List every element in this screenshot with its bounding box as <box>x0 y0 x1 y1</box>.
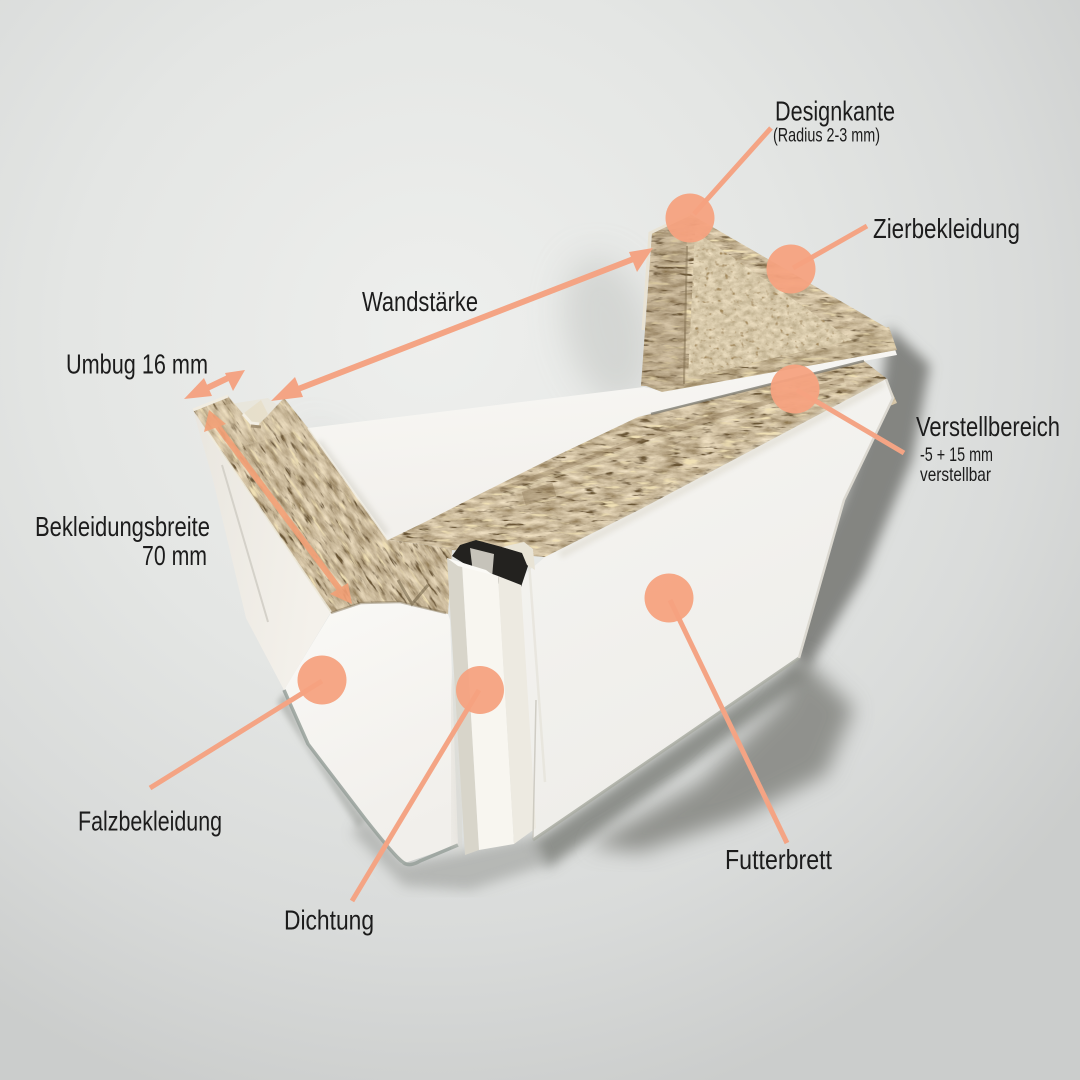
svg-text:Verstellbereich: Verstellbereich <box>916 411 1060 442</box>
svg-text:(Radius 2-3 mm): (Radius 2-3 mm) <box>773 125 880 147</box>
svg-text:Futterbrett: Futterbrett <box>725 844 832 875</box>
svg-text:Umbug 16 mm: Umbug 16 mm <box>66 349 208 380</box>
svg-text:Zierbekleidung: Zierbekleidung <box>873 213 1020 244</box>
svg-text:Dichtung: Dichtung <box>284 905 374 936</box>
svg-text:-5 + 15 mm: -5 + 15 mm <box>920 444 993 466</box>
svg-text:Bekleidungsbreite: Bekleidungsbreite <box>35 511 210 542</box>
svg-text:Falzbekleidung: Falzbekleidung <box>78 806 222 837</box>
svg-text:verstellbar: verstellbar <box>920 464 991 486</box>
svg-text:Wandstärke: Wandstärke <box>362 286 478 317</box>
svg-text:70 mm: 70 mm <box>142 540 207 571</box>
svg-text:Designkante: Designkante <box>775 96 895 127</box>
